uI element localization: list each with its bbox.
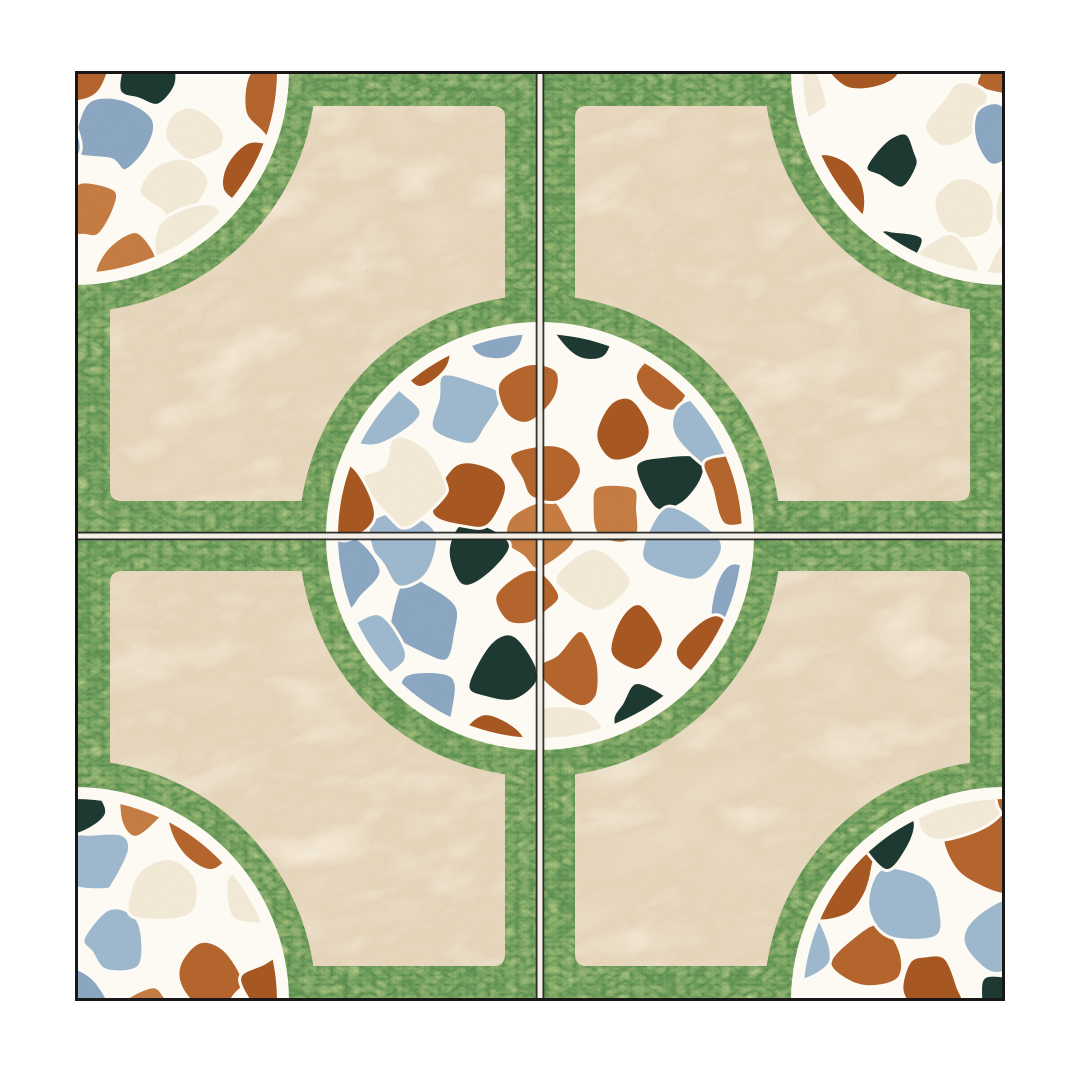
page-background [0, 0, 1080, 1080]
tile-pattern-image [75, 71, 1005, 1001]
